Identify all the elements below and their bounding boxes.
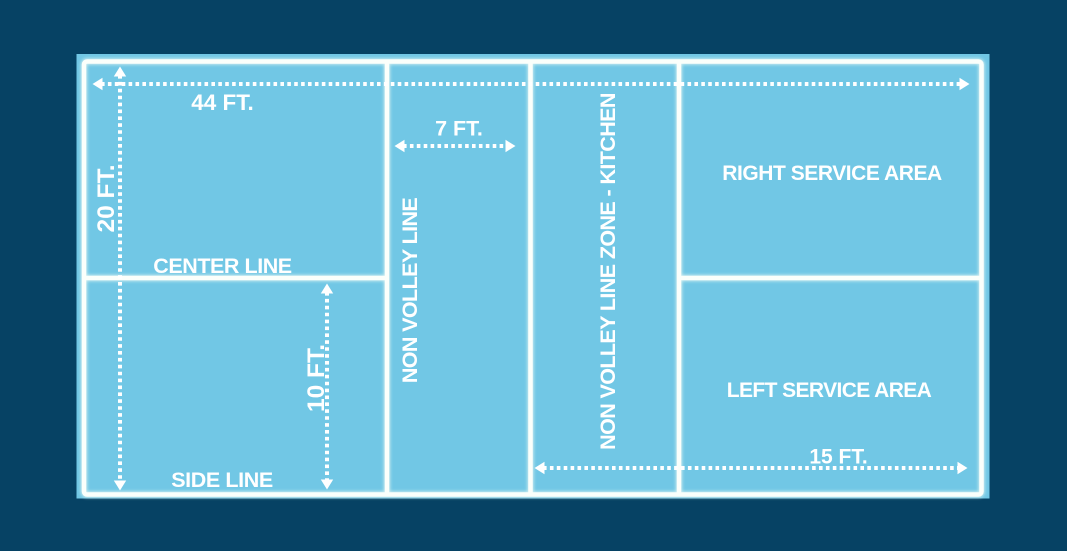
svg-text:NON VOLLEY LINE ZONE - KITCHEN: NON VOLLEY LINE ZONE - KITCHEN <box>596 93 620 450</box>
svg-text:44 FT.: 44 FT. <box>191 90 254 115</box>
svg-text:10 FT.: 10 FT. <box>303 344 330 412</box>
svg-text:RIGHT SERVICE AREA: RIGHT SERVICE AREA <box>722 162 942 185</box>
svg-text:15 FT.: 15 FT. <box>809 446 867 469</box>
svg-text:7 FT.: 7 FT. <box>435 117 483 141</box>
svg-text:SIDE LINE: SIDE LINE <box>171 468 273 492</box>
svg-text:CENTER LINE: CENTER LINE <box>153 254 292 278</box>
svg-text:LEFT SERVICE AREA: LEFT SERVICE AREA <box>727 379 932 402</box>
svg-text:NON VOLLEY LINE: NON VOLLEY LINE <box>398 198 422 384</box>
svg-text:20 FT.: 20 FT. <box>93 164 120 232</box>
